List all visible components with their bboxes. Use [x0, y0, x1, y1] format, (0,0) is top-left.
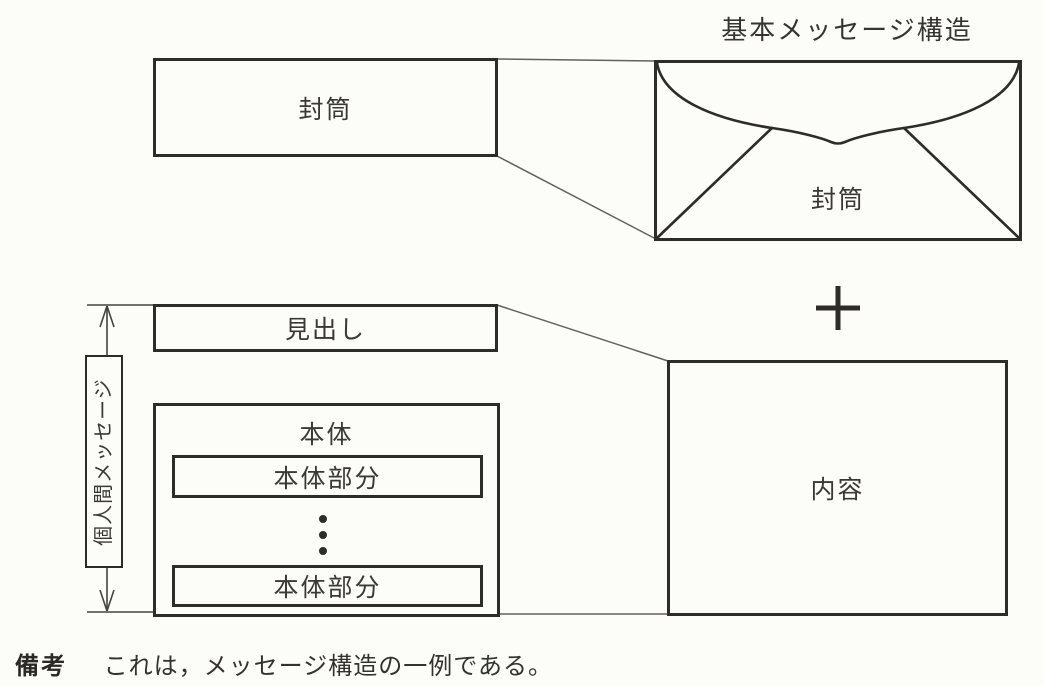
body-label: 本体 [299, 415, 353, 451]
body-part-box-2: 本体部分 [172, 565, 483, 607]
body-part-label-2: 本体部分 [273, 568, 381, 604]
envelope-pictorial-box: 封筒 [654, 60, 1022, 241]
interpersonal-message-bracket-box: 個人間メッセージ [85, 355, 123, 568]
diagram-canvas: 基本メッセージ構造 封筒 封筒 見出し 本体 本体部分 本体部分 内容 個人間メ… [0, 0, 1044, 686]
envelope-schematic-label: 封筒 [298, 90, 352, 126]
plus-icon [816, 286, 860, 330]
content-box: 内容 [667, 360, 1008, 616]
envelope-pictorial-label: 封筒 [657, 180, 1019, 216]
body-part-box-1: 本体部分 [172, 455, 483, 498]
body-part-label-1: 本体部分 [273, 459, 381, 495]
note-line: 備考 これは，メッセージ構造の一例である。 [15, 646, 553, 681]
diagram-title: 基本メッセージ構造 [627, 10, 1044, 47]
connector-content-top [497, 305, 668, 361]
note-heading: 備考 [15, 653, 67, 680]
connector-lines [497, 59, 668, 614]
connector-envelope-top [498, 59, 656, 61]
heading-label: 見出し [285, 310, 366, 346]
interpersonal-message-label: 個人間メッセージ [89, 357, 119, 566]
heading-box: 見出し [153, 304, 498, 352]
note-text: これは，メッセージ構造の一例である。 [104, 654, 553, 680]
connector-envelope-bottom [497, 156, 656, 239]
content-label: 内容 [810, 470, 864, 506]
envelope-schematic-box: 封筒 [153, 58, 498, 157]
